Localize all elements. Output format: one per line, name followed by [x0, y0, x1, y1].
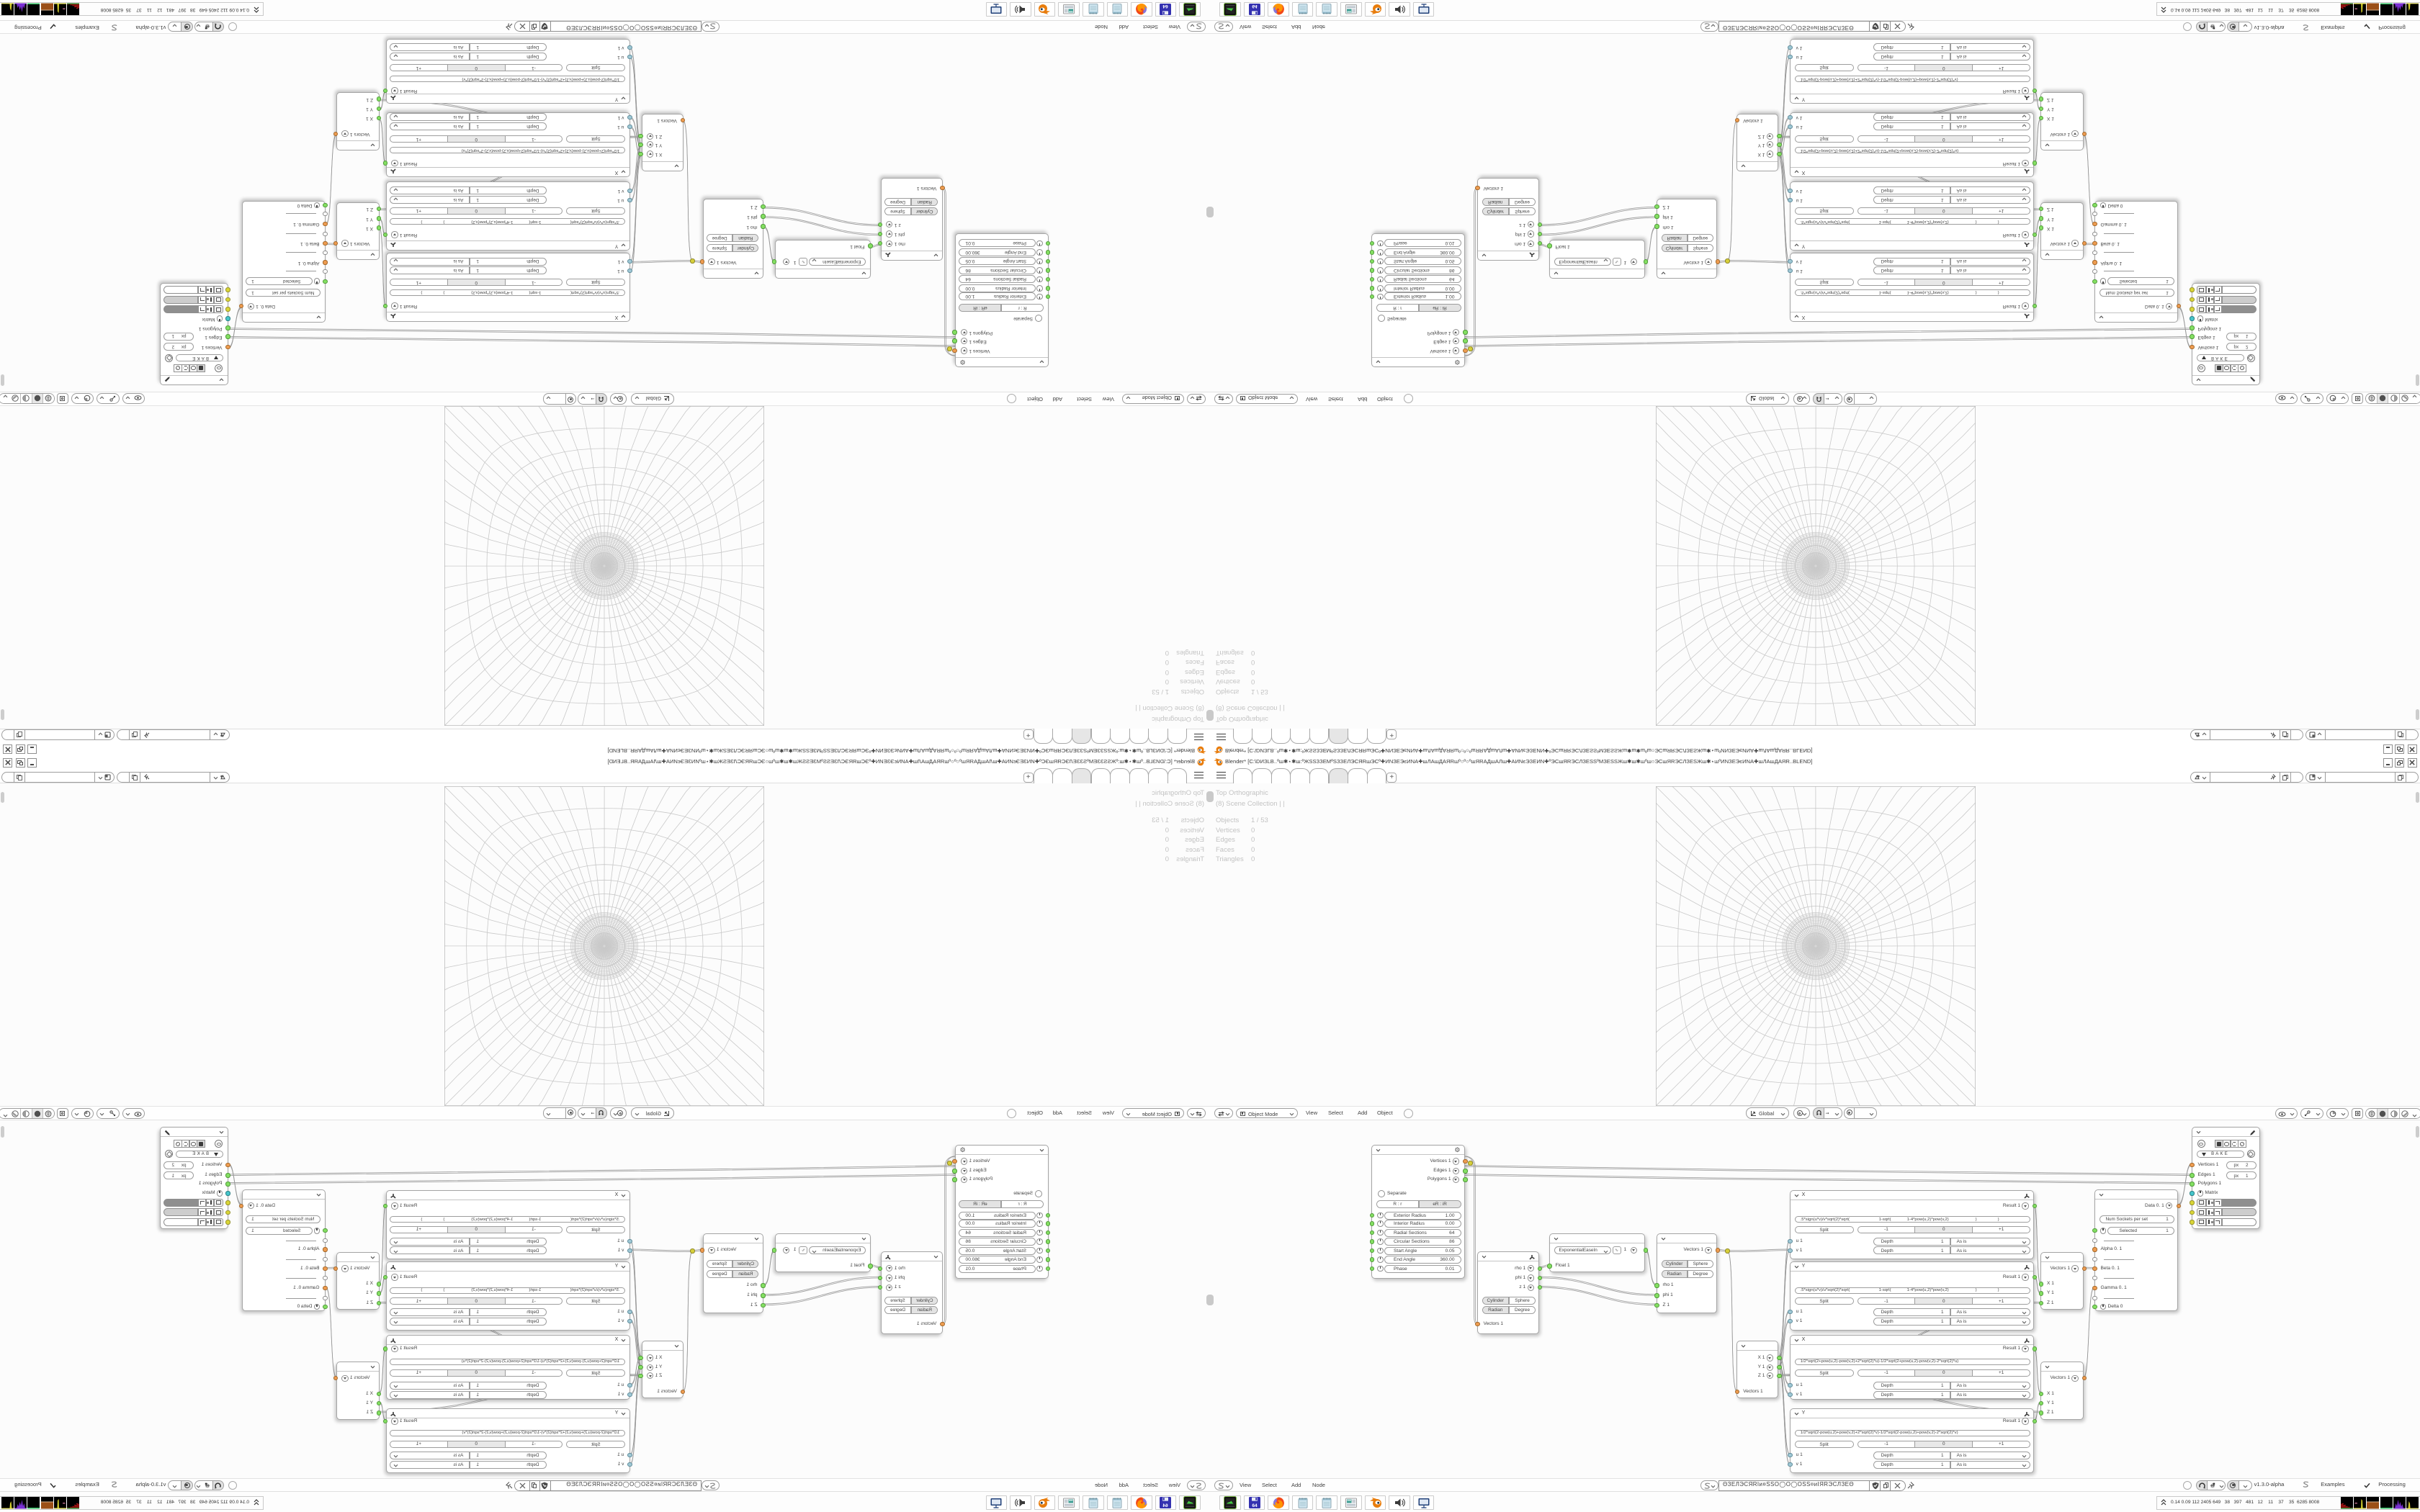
- svg-text:64: 64: [1162, 1503, 1168, 1508]
- svg-text:64: 64: [1252, 1503, 1258, 1508]
- svg-text:64: 64: [1252, 4, 1258, 9]
- svg-text:64: 64: [1162, 4, 1168, 9]
